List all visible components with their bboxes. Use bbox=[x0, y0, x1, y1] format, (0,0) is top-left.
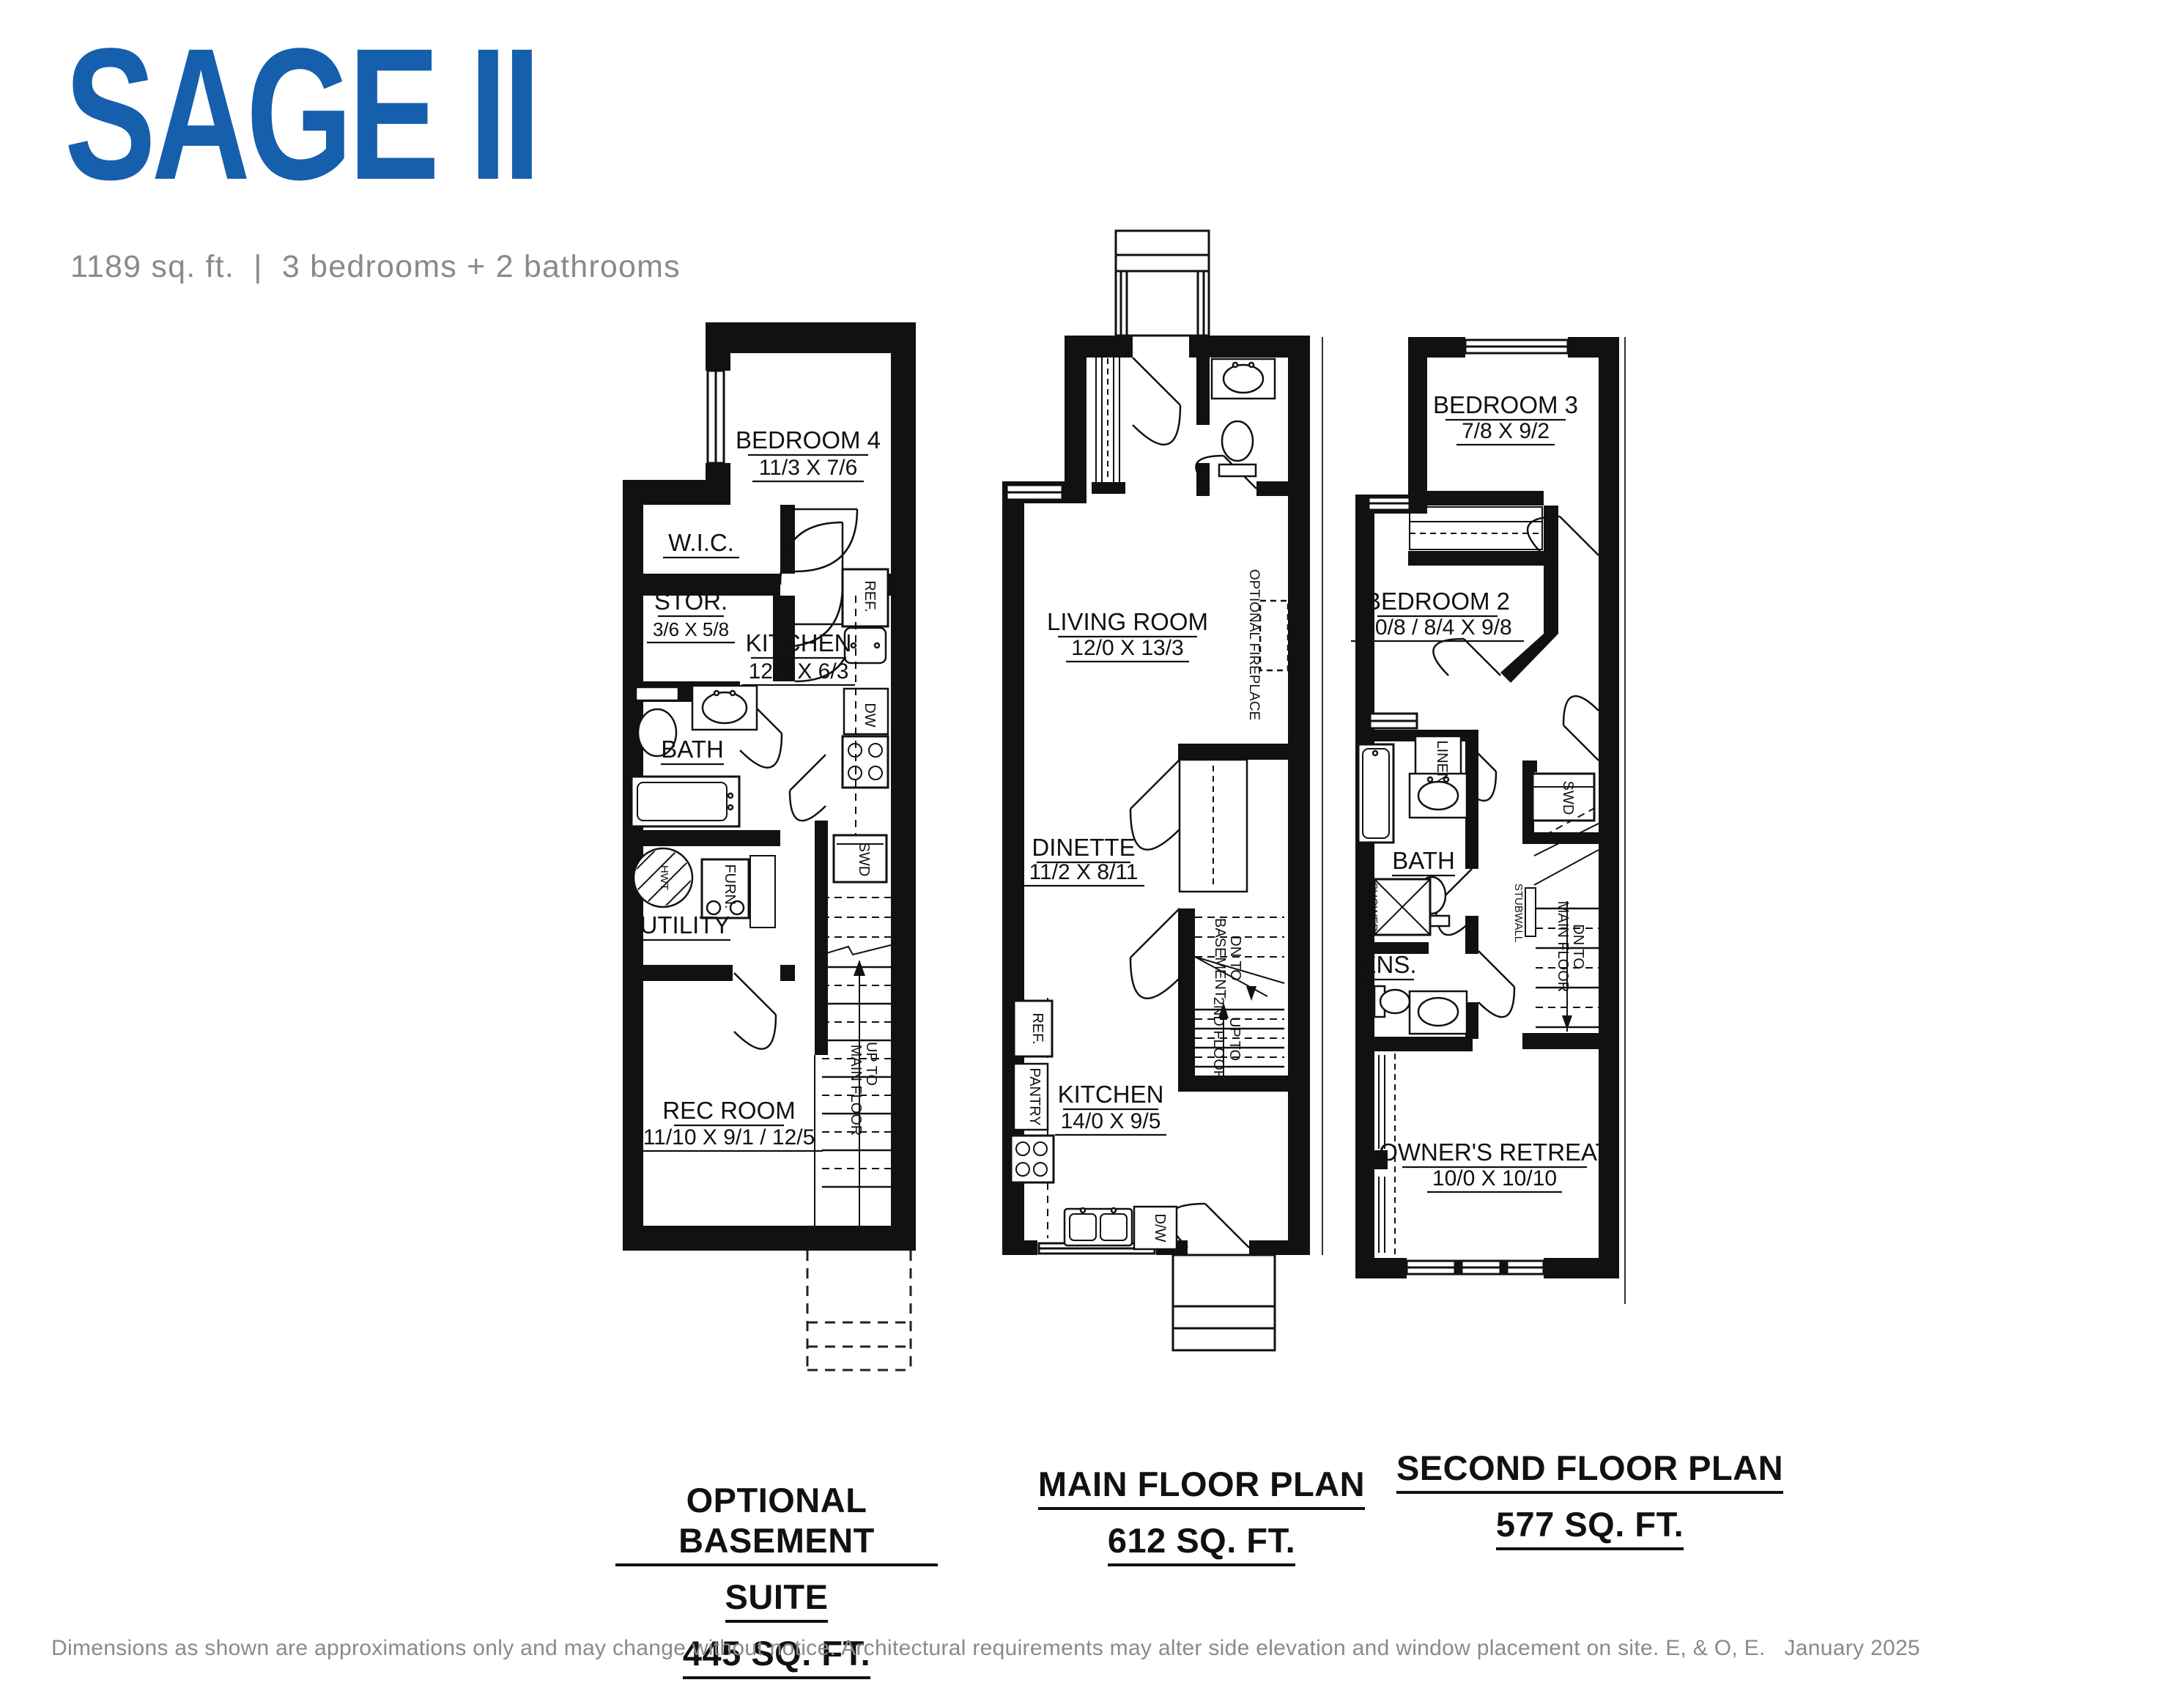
label-up-2: 2ND FLOOR bbox=[1210, 997, 1226, 1081]
label-bdw: DW bbox=[862, 703, 878, 727]
label-bedroom3-dim: 7/8 X 9/2 bbox=[1462, 419, 1550, 443]
label-bkitchen: KITCHEN bbox=[746, 629, 852, 656]
label-stor-dim: 3/6 X 5/8 bbox=[653, 618, 729, 640]
basement-floorplan: BEDROOM 4 11/3 X 7/6 W.I.C. STOR. 3/6 X … bbox=[623, 322, 938, 1377]
second-caption-line1: SECOND FLOOR PLAN bbox=[1396, 1448, 1783, 1494]
label-dn-2: BASEMENT bbox=[1212, 918, 1228, 999]
label-furn: FURN. bbox=[722, 864, 738, 908]
label-bstairs-1: UP TO bbox=[863, 1042, 879, 1086]
main-caption-line2: 612 SQ. FT. bbox=[1108, 1520, 1295, 1566]
label-bswd: SWD bbox=[856, 843, 872, 877]
label-recroom: REC ROOM bbox=[662, 1097, 796, 1124]
main-caption: MAIN FLOOR PLAN 612 SQ. FT. bbox=[1022, 1464, 1381, 1577]
label-mdw: D/W bbox=[1152, 1214, 1168, 1243]
label-bref: REF. bbox=[862, 580, 878, 612]
label-up-1: UP TO bbox=[1226, 1017, 1243, 1061]
label-ens: ENS. bbox=[1360, 951, 1416, 978]
label-bedroom2-dim: 10/8 / 8/4 X 9/8 bbox=[1363, 615, 1511, 640]
label-stor: STOR. bbox=[654, 588, 728, 615]
label-mref: REF. bbox=[1029, 1013, 1045, 1044]
label-bedroom4: BEDROOM 4 bbox=[736, 426, 881, 454]
main-floorplan: LIVING ROOM 12/0 X 13/3 DINETTE 11/2 X 8… bbox=[995, 220, 1328, 1418]
basement-window-well bbox=[807, 1251, 911, 1370]
second-caption-line2: 577 SQ. FT. bbox=[1496, 1504, 1684, 1550]
basement-caption-line2: SUITE bbox=[725, 1577, 829, 1623]
second-floorplan: BEDROOM 3 7/8 X 9/2 BEDROOM 2 10/8 / 8/4… bbox=[1348, 337, 1652, 1311]
label-recroom-dim: 11/10 X 9/1 / 12/5 bbox=[643, 1125, 815, 1150]
label-utility: UTILITY bbox=[640, 911, 730, 939]
label-sswd: SWD bbox=[1560, 781, 1576, 815]
label-mkitchen: KITCHEN bbox=[1058, 1081, 1164, 1108]
page-subtitle: 1189 sq. ft. | 3 bedrooms + 2 bathrooms bbox=[70, 249, 681, 285]
label-fireplace: OPTIONAL FIREPLACE bbox=[1246, 569, 1262, 720]
label-bkitchen-dim: 12/1 X 6/3 bbox=[749, 659, 849, 684]
label-bedroom2: BEDROOM 2 bbox=[1365, 588, 1510, 615]
main-porch bbox=[1116, 231, 1209, 336]
label-shower: SHOWER bbox=[1367, 882, 1380, 932]
label-stubwall: STUBWALL bbox=[1512, 884, 1525, 942]
disclaimer-text: Dimensions as shown are approximations o… bbox=[51, 1636, 1920, 1661]
label-dinette-dim: 11/2 X 8/11 bbox=[1029, 860, 1138, 884]
basement-caption-line1: OPTIONAL BASEMENT bbox=[615, 1480, 938, 1566]
label-mkitchen-dim: 14/0 X 9/5 bbox=[1061, 1109, 1161, 1133]
label-wic: W.I.C. bbox=[668, 529, 734, 556]
label-linen: LINEN bbox=[1434, 741, 1450, 784]
label-dinette: DINETTE bbox=[1032, 834, 1135, 861]
label-bbath: BATH bbox=[661, 736, 724, 763]
main-underlines bbox=[1023, 637, 1197, 1135]
label-living-dim: 12/0 X 13/3 bbox=[1071, 636, 1183, 660]
label-hwt: HWT bbox=[658, 865, 670, 890]
label-bedroom4-dim: 11/3 X 7/6 bbox=[759, 456, 858, 480]
basement-window bbox=[708, 371, 724, 463]
label-pantry: PANTRY bbox=[1026, 1067, 1043, 1125]
label-sdn-2: MAIN FLOOR bbox=[1555, 901, 1571, 992]
label-bstairs-2: MAIN FLOOR bbox=[848, 1045, 864, 1136]
label-sdn-1: DN TO bbox=[1570, 924, 1586, 969]
floorplan-sheet: SAGE II 1189 sq. ft. | 3 bedrooms + 2 ba… bbox=[0, 0, 2184, 1688]
label-living: LIVING ROOM bbox=[1047, 608, 1208, 635]
label-owners: OWNER'S RETREAT bbox=[1379, 1139, 1610, 1166]
page-title: SAGE II bbox=[64, 21, 536, 208]
second-closet-br3 bbox=[1410, 507, 1542, 549]
label-bedroom3: BEDROOM 3 bbox=[1433, 391, 1578, 418]
main-deck bbox=[1173, 1255, 1275, 1350]
main-entry-closet bbox=[1096, 343, 1119, 482]
label-owners-dim: 10/0 X 10/10 bbox=[1432, 1166, 1557, 1191]
label-sbath: BATH bbox=[1392, 847, 1455, 874]
main-caption-line1: MAIN FLOOR PLAN bbox=[1038, 1464, 1365, 1510]
label-dn-1: DN TO bbox=[1227, 936, 1243, 981]
main-labels: LIVING ROOM 12/0 X 13/3 DINETTE 11/2 X 8… bbox=[1026, 569, 1262, 1243]
second-caption: SECOND FLOOR PLAN 577 SQ. FT. bbox=[1385, 1448, 1795, 1561]
